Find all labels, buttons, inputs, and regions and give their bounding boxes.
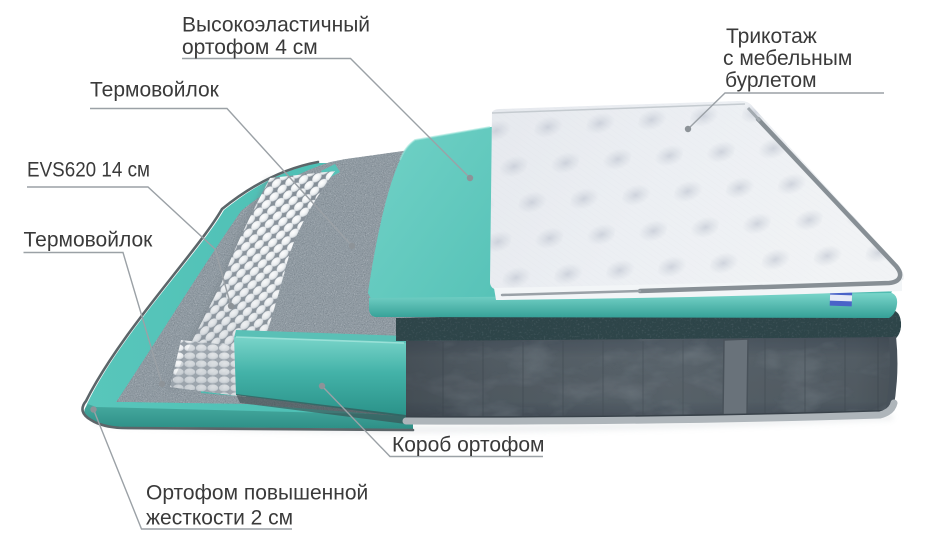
svg-text:Ортофом повышенной: Ортофом повышенной bbox=[146, 482, 368, 505]
svg-text:с мебельным: с мебельным bbox=[723, 47, 852, 70]
svg-text:Термовойлок: Термовойлок bbox=[24, 229, 154, 252]
svg-text:EVS620 14 см: EVS620 14 см bbox=[27, 159, 150, 182]
svg-text:бурлетом: бурлетом bbox=[725, 69, 817, 92]
svg-text:жесткости 2 см: жесткости 2 см bbox=[146, 507, 293, 530]
svg-text:Высокоэластичный: Высокоэластичный bbox=[182, 14, 370, 37]
svg-text:Термовойлок: Термовойлок bbox=[90, 79, 220, 102]
svg-text:Короб ортофом: Короб ортофом bbox=[392, 434, 545, 457]
svg-text:ортофом 4 см: ортофом 4 см bbox=[182, 36, 318, 59]
svg-text:Трикотаж: Трикотаж bbox=[726, 25, 817, 48]
